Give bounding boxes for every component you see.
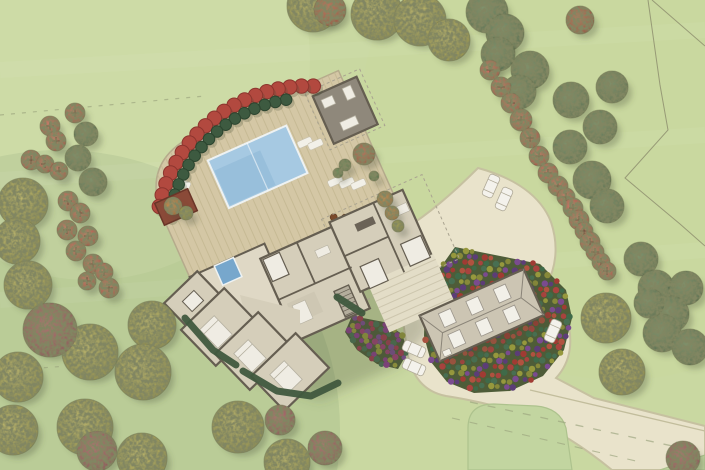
tree — [265, 405, 295, 435]
site-plan — [0, 0, 705, 470]
tree — [428, 19, 470, 61]
tree — [353, 143, 375, 165]
tree — [666, 441, 700, 470]
tree — [4, 261, 52, 309]
tree — [566, 6, 594, 34]
tree — [79, 168, 107, 196]
tree — [553, 82, 589, 118]
tree — [553, 130, 587, 164]
tree — [599, 349, 645, 395]
tree — [0, 218, 40, 264]
tree — [212, 401, 264, 453]
site-plan-rendering — [0, 0, 705, 470]
tree — [634, 288, 664, 318]
tree — [333, 168, 343, 178]
tree — [369, 171, 379, 181]
tree — [74, 122, 98, 146]
tree — [23, 303, 77, 357]
tree — [581, 293, 631, 343]
tree — [65, 145, 91, 171]
tree — [115, 344, 171, 400]
tree — [385, 206, 399, 220]
tree — [672, 329, 705, 365]
tree — [596, 71, 628, 103]
grass-island — [468, 404, 572, 470]
tree — [128, 301, 176, 349]
tree — [314, 0, 346, 26]
tree — [583, 110, 617, 144]
tree — [377, 191, 393, 207]
tree — [392, 220, 404, 232]
tree — [179, 206, 193, 220]
tree — [590, 189, 624, 223]
tree — [77, 431, 117, 470]
tree — [308, 431, 342, 465]
